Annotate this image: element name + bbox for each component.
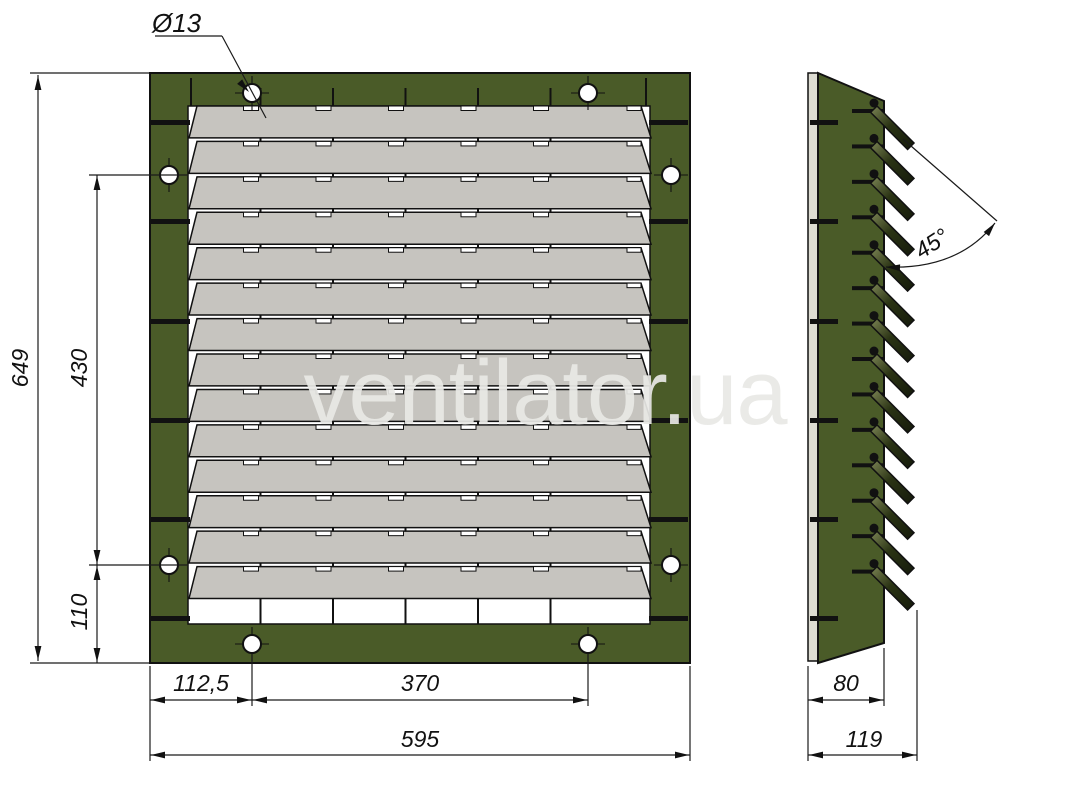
dim-blade-angle: 45° [910, 223, 953, 264]
slat-notch [627, 106, 641, 111]
dim-arrowhead [902, 752, 916, 759]
flange-tab [810, 616, 838, 621]
side-view [808, 73, 914, 663]
slat-notch [389, 460, 404, 465]
slat-notch [534, 212, 549, 217]
mounting-hole [662, 556, 680, 574]
dim-arrowhead [237, 697, 251, 704]
frame-tab-left [151, 616, 190, 621]
slat-notch [316, 141, 331, 146]
mounting-hole [243, 635, 261, 653]
blade-pivot [870, 205, 879, 214]
slat-notch [316, 496, 331, 501]
slat-notch [461, 141, 476, 146]
dim-arrowhead [94, 648, 101, 662]
frame-tab-right [649, 319, 688, 324]
blade-pivot [870, 169, 879, 178]
slat-notch [244, 141, 259, 146]
slat-notch [534, 177, 549, 182]
slat-notch [627, 283, 641, 288]
slat-notch [389, 319, 404, 324]
slat-notch [244, 283, 259, 288]
slat-notch [461, 212, 476, 217]
blade-pivot [870, 276, 879, 285]
blade-pivot [870, 240, 879, 249]
frame-tab-right [649, 120, 688, 125]
frame-tab-left [151, 319, 190, 324]
slat-notch [389, 283, 404, 288]
slat-notch [627, 212, 641, 217]
dim-arrowhead [94, 176, 101, 190]
slat-notch [534, 248, 549, 253]
mounting-hole [579, 635, 597, 653]
slat-notch [461, 106, 476, 111]
dim-hole-left-offset: 112,5 [173, 670, 229, 696]
slat-notch [244, 106, 259, 111]
slat-notch [244, 177, 259, 182]
blade-pivot [870, 524, 879, 533]
slat-notch [244, 425, 259, 430]
flange-tab [810, 418, 838, 423]
slat-notch [534, 141, 549, 146]
slat-notch [316, 177, 331, 182]
blade-pivot [870, 134, 879, 143]
slat-notch [461, 460, 476, 465]
blade-pivot [870, 417, 879, 426]
flange-tab [810, 517, 838, 522]
blade-pivot [870, 382, 879, 391]
slat-notch [316, 212, 331, 217]
slat-notch [389, 212, 404, 217]
slat-notch [534, 567, 549, 572]
dim-arrowhead [35, 646, 42, 660]
slat-notch [534, 106, 549, 111]
frame-tab-right [649, 616, 688, 621]
frame-tab-left [151, 120, 190, 125]
slat-notch [627, 460, 641, 465]
blade-pivot [870, 453, 879, 462]
slat-notch [534, 460, 549, 465]
slat-notch [627, 319, 641, 324]
slat-notch [316, 248, 331, 253]
slat-notch [534, 496, 549, 501]
frame-tab-right [649, 219, 688, 224]
slat-notch [534, 531, 549, 536]
slat-notch [389, 141, 404, 146]
slat-notch [389, 496, 404, 501]
dim-hole-span-horizontal: 370 [401, 670, 440, 696]
drawing-canvas: 649 430 110 112,5 370 595 80 119 Ø13 45°… [0, 0, 1078, 788]
slat-notch [627, 177, 641, 182]
dim-total-depth: 119 [846, 726, 883, 752]
slat-notch [627, 141, 641, 146]
slat-notch [244, 496, 259, 501]
side-flange [808, 73, 818, 661]
slat-notch [244, 567, 259, 572]
flange-tab [810, 319, 838, 324]
slat-notch [627, 248, 641, 253]
slat-notch [534, 283, 549, 288]
slat-notch [389, 106, 404, 111]
slat-notch [389, 177, 404, 182]
frame-tab-right [649, 517, 688, 522]
dim-arrowhead [869, 697, 883, 704]
slat-notch [316, 283, 331, 288]
dim-arrowhead [94, 566, 101, 580]
slat-notch [316, 106, 331, 111]
slat-notch [316, 567, 331, 572]
dim-arrowhead [35, 76, 42, 90]
slat-notch [244, 531, 259, 536]
dim-arrowhead [253, 697, 267, 704]
slat-notch [244, 460, 259, 465]
blade-pivot [870, 347, 879, 356]
slat-notch [244, 248, 259, 253]
slat-notch [627, 531, 641, 536]
dim-arrowhead [151, 697, 165, 704]
slat-notch [316, 460, 331, 465]
slat-notch [534, 319, 549, 324]
slat-notch [627, 567, 641, 572]
dim-arrowhead [809, 752, 823, 759]
slat-notch [389, 531, 404, 536]
slat-notch [461, 319, 476, 324]
dim-arrowhead [94, 550, 101, 564]
slat-notch [627, 496, 641, 501]
blade-pivot [870, 559, 879, 568]
blade-pivot [870, 488, 879, 497]
slat-notch [244, 319, 259, 324]
slat-notch [461, 248, 476, 253]
slat-notch [461, 177, 476, 182]
dim-width: 595 [401, 726, 440, 752]
mounting-hole [579, 84, 597, 102]
slat-notch [389, 248, 404, 253]
dim-hole-bottom-offset: 110 [66, 593, 92, 630]
flange-tab [810, 120, 838, 125]
slat-notch [461, 283, 476, 288]
slat-notch [316, 531, 331, 536]
slat-notch [244, 354, 259, 359]
slat-notch [389, 567, 404, 572]
flange-tab [810, 219, 838, 224]
technical-drawing: 649 430 110 112,5 370 595 80 119 Ø13 45°… [0, 0, 1078, 788]
slat-notch [244, 389, 259, 394]
slat-notch [461, 496, 476, 501]
dim-hole-span-vertical: 430 [66, 349, 92, 388]
frame-tab-left [151, 418, 190, 423]
mounting-hole [662, 166, 680, 184]
slat-notch [461, 567, 476, 572]
dim-height: 649 [7, 349, 33, 388]
blade-pivot [870, 311, 879, 320]
watermark: ventilator.ua [303, 342, 788, 444]
dim-arrowhead [675, 752, 689, 759]
slat-notch [244, 212, 259, 217]
frame-tab-left [151, 219, 190, 224]
angle-ref-line [903, 139, 997, 221]
hole-diameter-label: Ø13 [151, 8, 202, 38]
slat-notch [461, 531, 476, 536]
slat-notch [316, 319, 331, 324]
blade-pivot [870, 99, 879, 108]
frame-tab-left [151, 517, 190, 522]
dim-arrowhead [151, 752, 165, 759]
dim-arrowhead [809, 697, 823, 704]
dim-frame-depth: 80 [833, 670, 859, 696]
dim-arrowhead [573, 697, 587, 704]
